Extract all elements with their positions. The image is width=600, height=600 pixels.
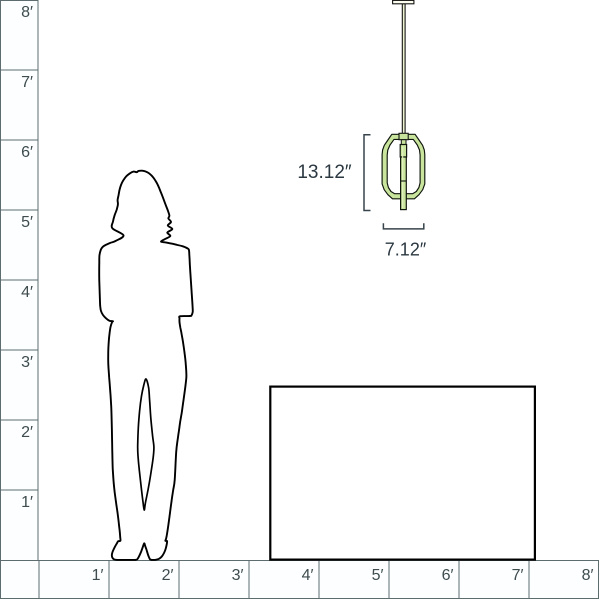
svg-text:7.12″: 7.12″	[385, 240, 427, 260]
svg-text:5′: 5′	[21, 214, 33, 231]
svg-text:3′: 3′	[232, 567, 244, 584]
svg-text:8′: 8′	[21, 4, 33, 21]
svg-text:13.12″: 13.12″	[297, 162, 352, 183]
svg-text:1′: 1′	[92, 567, 104, 584]
svg-text:1′: 1′	[21, 494, 33, 511]
svg-text:2′: 2′	[162, 567, 174, 584]
svg-text:6′: 6′	[21, 144, 33, 161]
svg-text:2′: 2′	[21, 424, 33, 441]
svg-text:8′: 8′	[582, 567, 594, 584]
svg-text:7′: 7′	[21, 74, 33, 91]
svg-text:3′: 3′	[21, 354, 33, 371]
svg-text:4′: 4′	[302, 567, 314, 584]
svg-text:6′: 6′	[442, 567, 454, 584]
svg-text:5′: 5′	[372, 567, 384, 584]
svg-text:7′: 7′	[512, 567, 524, 584]
svg-text:4′: 4′	[21, 284, 33, 301]
